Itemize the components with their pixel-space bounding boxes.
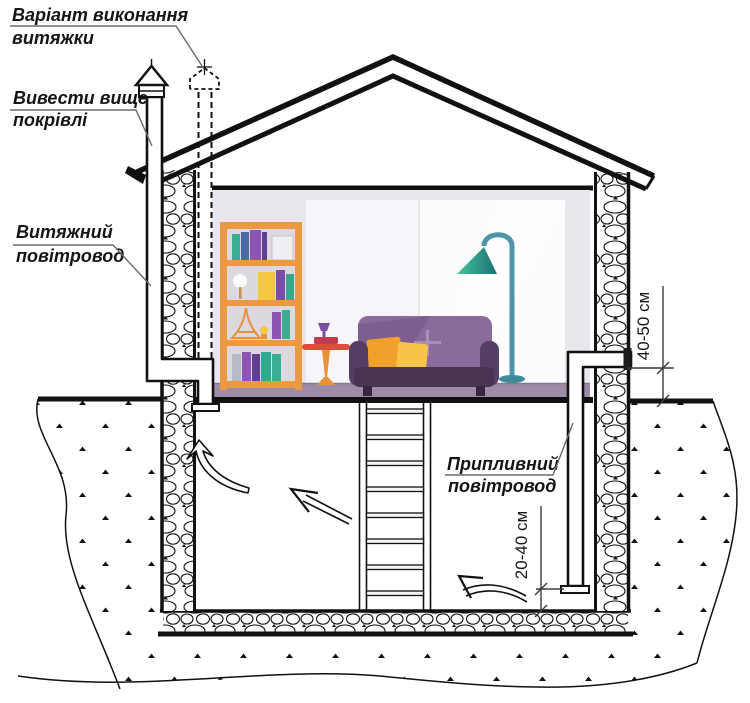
supply-duct-flange: [561, 586, 589, 593]
left-wall-stones: [163, 170, 194, 611]
bookshelf-shelf: [227, 260, 295, 266]
label-above-roof-line1: Вивести вище: [13, 88, 148, 108]
goblet-stem: [323, 331, 326, 337]
living-room-scene: [212, 190, 590, 397]
bookshelf-bottom: [220, 381, 302, 388]
label-exhaust-line1: Витяжний: [16, 222, 113, 242]
sofa-leg: [363, 386, 372, 396]
book: [276, 270, 285, 300]
book: [272, 312, 281, 339]
ventilation-diagram-page: Варіант виконання витяжки Вивести вище п…: [0, 0, 750, 703]
label-supply-line1: Припливний: [447, 454, 559, 474]
label-variant-line1: Варіант виконання: [12, 5, 189, 25]
slab-stones: [163, 611, 628, 633]
tree-stem: [239, 287, 242, 299]
right-wall: [596, 172, 629, 611]
tree-decor: [233, 274, 247, 288]
label-exhaust-line2: повітровод: [16, 246, 124, 266]
book: [282, 310, 290, 339]
dim-text-40-50: 40-50 см: [634, 292, 653, 360]
book: [252, 354, 260, 381]
left-wall: [162, 170, 195, 611]
book: [232, 354, 241, 381]
air-intake-grille-icon: [624, 348, 632, 370]
book: [261, 352, 271, 381]
bookshelf-post: [220, 222, 227, 390]
book: [241, 232, 249, 260]
book: [286, 274, 294, 300]
lamp-base: [499, 375, 525, 383]
book: [232, 234, 240, 260]
bookshelf-top: [220, 222, 302, 229]
book: [242, 352, 251, 381]
bookshelf-shelf: [227, 340, 295, 346]
lamp-decor-base: [261, 334, 267, 339]
bookshelf-shelf: [227, 300, 295, 306]
ventilation-diagram: Варіант виконання витяжки Вивести вище п…: [0, 0, 750, 703]
label-supply-line2: повітровод: [448, 476, 556, 496]
dim-text-20-40: 20-40 см: [512, 511, 531, 579]
label-variant-line2: витяжки: [12, 28, 94, 48]
exhaust-duct-flange: [192, 404, 219, 411]
box-decor: [272, 236, 293, 260]
book: [258, 272, 275, 300]
lamp-decor: [260, 326, 268, 334]
bookshelf: [220, 222, 302, 390]
bookshelf-post: [295, 222, 302, 390]
sofa-leg: [476, 386, 485, 396]
right-wall-stones: [597, 172, 627, 611]
red-book: [314, 337, 338, 344]
book: [272, 354, 281, 381]
label-above-roof-line2: покрівлі: [13, 110, 88, 130]
book: [250, 230, 261, 260]
table-top: [302, 344, 350, 350]
book: [262, 232, 267, 260]
foundation-slab: [158, 611, 633, 634]
sofa: [349, 316, 499, 396]
sofa-seat: [354, 367, 494, 387]
